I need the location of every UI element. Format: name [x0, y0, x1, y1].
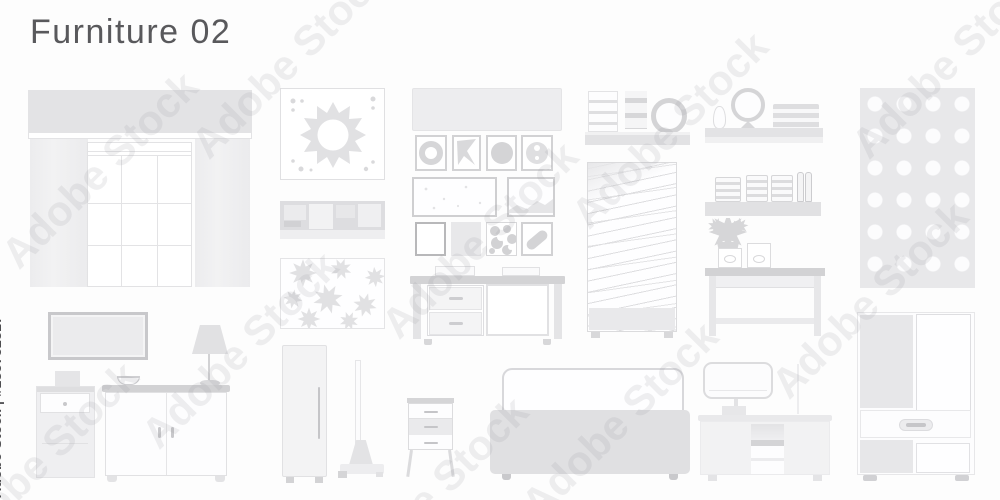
- wall-panel-illustration: [412, 88, 562, 131]
- box-shelf-illustration: [280, 201, 385, 239]
- sun-icon: [281, 89, 384, 179]
- mirror-glass: [587, 162, 677, 332]
- wardrobe-drawer: [860, 410, 971, 438]
- vacuum-wheel: [338, 471, 347, 478]
- sofa-foot: [502, 474, 511, 480]
- round-mirror: [651, 98, 687, 134]
- book: [805, 172, 812, 202]
- storage-box: [358, 204, 381, 227]
- floor-lamp-pole: [797, 364, 799, 414]
- cabinet-foot: [708, 475, 717, 481]
- page-title: Furniture 02: [30, 13, 231, 52]
- box-on-top: [55, 371, 80, 387]
- drawer-unit: [427, 285, 484, 336]
- door-handle: [171, 427, 174, 438]
- globe-stand: [741, 121, 755, 128]
- book: [797, 172, 804, 202]
- wall-frame-illustration: [48, 312, 148, 360]
- bowl: [117, 376, 140, 385]
- box-stack: [622, 88, 650, 132]
- drawer: [409, 419, 452, 435]
- small-picture-frame: [718, 248, 742, 268]
- shelf-board-edge: [705, 137, 823, 143]
- shelf-board: [751, 458, 784, 461]
- stock-id-watermark: Adobe Stock | #185732817: [0, 316, 4, 498]
- sideboard-doors: [105, 392, 227, 476]
- valance: [28, 90, 252, 132]
- drawer-handle: [899, 419, 933, 431]
- tall-mirror-illustration: [587, 162, 677, 338]
- shelf-board: [751, 440, 784, 446]
- vacuum-wheel: [376, 472, 383, 477]
- lamp-shade: [192, 325, 228, 354]
- table-stretcher: [716, 318, 814, 324]
- mirror-foot: [664, 332, 673, 338]
- wardrobe-illustration: [857, 312, 975, 481]
- storage-box: [309, 204, 333, 229]
- small-frame-empty: [415, 222, 446, 256]
- towel-stack: [746, 175, 768, 202]
- sofa-foot: [669, 474, 678, 480]
- shelf-with-round-mirror-illustration: [585, 88, 690, 145]
- window-glass: [87, 142, 192, 287]
- sun-wall-art-illustration: [280, 88, 385, 180]
- wardrobe-bottom-left-panel: [860, 440, 913, 473]
- cabinet-foot: [286, 477, 294, 483]
- desk-tabletop: [410, 276, 565, 284]
- cabinet-door: [282, 345, 327, 477]
- framed-print-abstract: [452, 135, 481, 171]
- mirror-base-panel: [589, 308, 675, 330]
- sofa-seat: [490, 410, 690, 474]
- open-shelf-niche: [751, 424, 784, 474]
- tall-cabinet-illustration: [282, 345, 327, 483]
- wardrobe-door-right: [916, 314, 971, 411]
- vacuum-body: [349, 440, 373, 465]
- small-panel-gray: [451, 222, 481, 256]
- box-stack: [588, 91, 618, 132]
- sideboard-foot: [215, 476, 225, 482]
- sideboard-illustration: [102, 376, 230, 482]
- drawer: [429, 312, 482, 335]
- towel-shelf-illustration: [705, 172, 825, 216]
- wide-frame-blob: [507, 177, 555, 217]
- wardrobe-foot: [863, 475, 877, 481]
- globe-shelf-illustration: [705, 88, 825, 146]
- floral-pattern: [281, 259, 384, 328]
- nightstand-with-drawer-illustration: [36, 371, 95, 478]
- curtain-left: [30, 139, 88, 287]
- cabinet-foot: [813, 475, 822, 481]
- shelf-board: [280, 230, 385, 239]
- towel-stack: [715, 177, 741, 202]
- drawer: [40, 393, 90, 413]
- globe: [731, 88, 765, 122]
- wardrobe-door-left: [860, 315, 913, 408]
- wardrobe-bottom-right-panel: [916, 443, 970, 473]
- shadow: [284, 221, 301, 227]
- table-apron: [709, 276, 821, 288]
- nightstand-body: [408, 403, 453, 450]
- framed-print-dots: [521, 135, 553, 171]
- shelf-board: [705, 202, 821, 216]
- desk-foot: [543, 339, 551, 345]
- small-frame-eraser: [521, 222, 553, 256]
- floral-panel-illustration: [280, 258, 385, 329]
- polka-dot-curtain-illustration: [860, 88, 975, 288]
- drawer: [409, 435, 452, 451]
- shelf-board: [585, 132, 690, 145]
- framed-print-circle: [486, 135, 517, 171]
- framed-print-ring: [415, 135, 447, 171]
- table-leg: [814, 276, 821, 336]
- desk-foot: [424, 339, 432, 345]
- table-leg: [709, 276, 716, 336]
- desk-cabinet-door: [486, 284, 549, 336]
- chair-backrest: [703, 362, 773, 399]
- cabinet-body: [700, 421, 830, 475]
- desk-with-drawers-illustration: [410, 266, 565, 345]
- panel-line: [42, 443, 88, 444]
- wardrobe-foot: [955, 475, 969, 481]
- cabinet-foot: [315, 477, 323, 483]
- curtain-rod: [28, 132, 252, 139]
- door-handle: [158, 427, 161, 438]
- stock-image-canvas: Adobe Stock Adobe Stock Adobe Stock Adob…: [0, 0, 1000, 500]
- wide-frame-speckled: [412, 177, 497, 217]
- window-with-curtains-illustration: [28, 90, 252, 288]
- drawer: [429, 287, 482, 310]
- storage-box: [336, 205, 355, 218]
- vase: [713, 106, 726, 129]
- sofa-illustration: [490, 368, 690, 480]
- console-table-illustration: [705, 218, 825, 339]
- drawer: [409, 404, 452, 419]
- three-drawer-nightstand-illustration: [407, 398, 454, 478]
- curtain-right: [195, 139, 250, 287]
- small-frame-blobs: [486, 222, 517, 256]
- towel-stack: [771, 175, 793, 202]
- small-picture-frame: [747, 243, 771, 268]
- sideboard-foot: [107, 476, 117, 482]
- desk-leg: [413, 284, 421, 339]
- eraser-shape: [525, 228, 550, 251]
- shelf-board: [705, 128, 823, 137]
- desk-leg: [554, 284, 562, 339]
- book-stack: [773, 104, 819, 129]
- mirror-foot: [591, 332, 600, 338]
- desk-top-item: [502, 267, 540, 276]
- nightstand-leg: [448, 450, 455, 477]
- nightstand-leg: [406, 450, 413, 477]
- storage-box: [284, 205, 306, 220]
- sideboard-top: [102, 385, 230, 392]
- desk-top-item: [435, 266, 475, 276]
- office-chair-cabinet-illustration: [698, 362, 832, 481]
- sofa-back: [502, 368, 684, 416]
- vacuum-cleaner-illustration: [338, 360, 398, 478]
- vacuum-handle-pole: [355, 360, 361, 444]
- table-top: [705, 268, 825, 276]
- door-handle: [318, 387, 320, 439]
